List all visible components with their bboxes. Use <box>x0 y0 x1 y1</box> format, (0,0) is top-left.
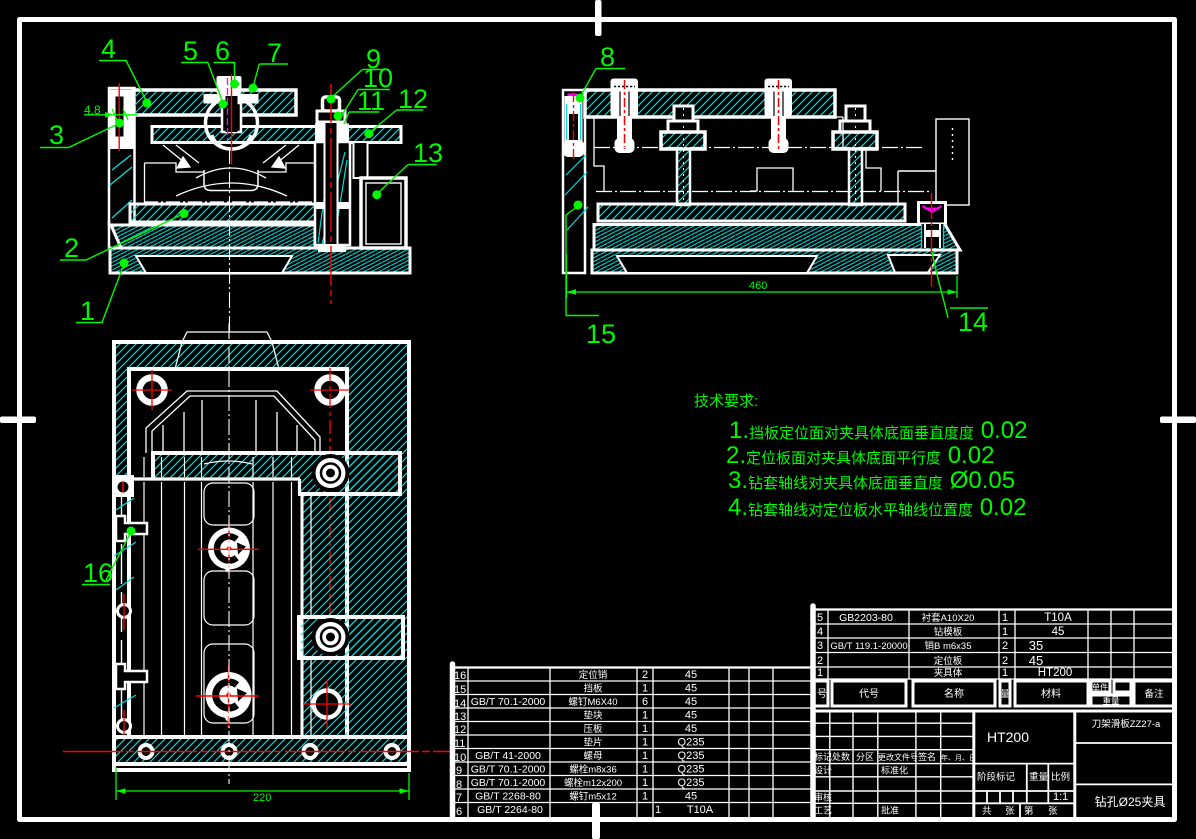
svg-text:螺栓m8x36: 螺栓m8x36 <box>569 764 617 776</box>
svg-text:定位销: 定位销 <box>579 669 608 681</box>
svg-text:16: 16 <box>454 670 466 682</box>
svg-text:1: 1 <box>1002 612 1008 624</box>
svg-text:HT200: HT200 <box>1038 667 1073 679</box>
svg-text:号: 号 <box>817 688 827 700</box>
svg-text:2: 2 <box>64 233 79 263</box>
svg-text:GB/T 70.1-2000: GB/T 70.1-2000 <box>471 696 546 708</box>
svg-text:共: 共 <box>982 806 992 817</box>
svg-text:45: 45 <box>685 669 697 681</box>
svg-text:张: 张 <box>1005 806 1015 817</box>
svg-text:螺母: 螺母 <box>583 751 602 762</box>
svg-text:5: 5 <box>817 612 823 624</box>
svg-text:1: 1 <box>642 777 648 789</box>
svg-text:GB/T 2268-80: GB/T 2268-80 <box>475 791 541 803</box>
svg-text:Q235: Q235 <box>678 737 705 749</box>
svg-text:GB/T 70.1-2000: GB/T 70.1-2000 <box>471 764 546 776</box>
svg-text:45: 45 <box>685 683 697 695</box>
svg-text:45: 45 <box>1052 626 1065 638</box>
svg-text:45: 45 <box>685 791 697 803</box>
svg-text:9: 9 <box>456 765 462 777</box>
svg-text:45: 45 <box>685 723 697 735</box>
svg-text:HT200: HT200 <box>987 729 1029 745</box>
svg-text:代号: 代号 <box>859 688 879 700</box>
svg-text:GB/T 41-2000: GB/T 41-2000 <box>475 750 541 762</box>
svg-text:定位板: 定位板 <box>934 655 963 667</box>
svg-text:8: 8 <box>456 779 462 791</box>
svg-text:13: 13 <box>454 711 466 723</box>
svg-text:处数: 处数 <box>832 751 850 762</box>
svg-text:45: 45 <box>1029 653 1043 668</box>
svg-text:签名: 签名 <box>918 751 936 762</box>
svg-text:11: 11 <box>454 738 465 750</box>
svg-text:螺钉M6X40: 螺钉M6X40 <box>568 697 617 708</box>
svg-text:6: 6 <box>456 806 462 818</box>
svg-text:T10A: T10A <box>1044 612 1072 624</box>
svg-text:刀架滑板ZZ27-a: 刀架滑板ZZ27-a <box>1092 718 1161 730</box>
svg-text:Q235: Q235 <box>678 750 705 762</box>
svg-text:夹具体: 夹具体 <box>934 667 963 679</box>
svg-text:Q235: Q235 <box>678 764 705 776</box>
svg-text:重量: 重量 <box>1102 696 1120 706</box>
svg-text:单件: 单件 <box>1092 682 1108 692</box>
svg-text:量: 量 <box>1000 689 1009 699</box>
svg-text:第: 第 <box>1024 805 1034 817</box>
svg-text:15: 15 <box>586 319 616 349</box>
svg-text:Q235: Q235 <box>678 777 705 789</box>
svg-text:1:1: 1:1 <box>1053 791 1068 803</box>
svg-text:1: 1 <box>642 791 648 803</box>
svg-text:比例: 比例 <box>1051 771 1070 783</box>
svg-text:1: 1 <box>655 804 661 816</box>
svg-text:4: 4 <box>101 34 116 64</box>
svg-text:材料: 材料 <box>1041 687 1061 700</box>
svg-text:1: 1 <box>642 750 648 762</box>
svg-text:14: 14 <box>454 698 466 710</box>
svg-text:年、月、日: 年、月、日 <box>941 753 976 762</box>
svg-text:1: 1 <box>642 710 648 722</box>
svg-text:1: 1 <box>642 723 648 735</box>
svg-text:挡板: 挡板 <box>583 683 603 695</box>
svg-text:备注: 备注 <box>1144 688 1164 700</box>
svg-text:垫片: 垫片 <box>583 737 602 749</box>
svg-text:分区: 分区 <box>856 752 874 762</box>
svg-text:GB/T 2264-80: GB/T 2264-80 <box>477 804 543 816</box>
svg-text:2: 2 <box>817 655 823 667</box>
svg-text:标准化: 标准化 <box>881 765 908 776</box>
svg-text:GB/T 70.1-2000: GB/T 70.1-2000 <box>471 777 546 789</box>
svg-text:14: 14 <box>958 307 988 337</box>
svg-text:1: 1 <box>80 296 95 326</box>
svg-text:220: 220 <box>253 792 271 804</box>
svg-text:1: 1 <box>817 667 823 679</box>
svg-text:螺钉m5x12: 螺钉m5x12 <box>569 792 617 803</box>
svg-text:GB/T 119.1-20000: GB/T 119.1-20000 <box>830 641 907 652</box>
svg-text:5: 5 <box>183 36 198 66</box>
svg-text:45: 45 <box>685 710 697 722</box>
svg-text:GB2203-80: GB2203-80 <box>839 612 893 624</box>
svg-text:更改文件号: 更改文件号 <box>878 752 918 762</box>
svg-text:13: 13 <box>413 138 443 168</box>
svg-text:8: 8 <box>600 42 615 72</box>
svg-text:12: 12 <box>454 724 466 736</box>
svg-text:45: 45 <box>685 696 697 708</box>
svg-text:2: 2 <box>1002 655 1008 667</box>
svg-text:名称: 名称 <box>944 687 964 700</box>
svg-text:销B m6x35: 销B m6x35 <box>925 640 972 652</box>
svg-text:设计: 设计 <box>814 765 832 776</box>
svg-text:2: 2 <box>1002 640 1008 652</box>
svg-text:标记: 标记 <box>814 751 832 762</box>
svg-text:1: 1 <box>1002 626 1008 638</box>
svg-text:钻模板: 钻模板 <box>934 626 963 638</box>
svg-text:工艺: 工艺 <box>814 806 832 816</box>
svg-text:技术要求:: 技术要求: <box>694 393 758 410</box>
svg-text:张: 张 <box>1048 806 1058 817</box>
svg-text:4: 4 <box>817 626 823 638</box>
svg-text:16: 16 <box>83 558 113 588</box>
svg-text:衬套A10X20: 衬套A10X20 <box>922 612 975 624</box>
svg-text:10: 10 <box>454 752 466 764</box>
svg-text:35: 35 <box>1029 638 1043 653</box>
svg-text:3: 3 <box>817 640 823 652</box>
svg-text:重量: 重量 <box>1029 771 1049 783</box>
svg-text:1: 1 <box>642 737 648 749</box>
svg-text:钻孔Ø25夹具: 钻孔Ø25夹具 <box>1095 794 1166 809</box>
svg-text:垫块: 垫块 <box>583 710 603 722</box>
svg-text:2: 2 <box>642 669 648 681</box>
svg-text:7: 7 <box>456 792 462 804</box>
svg-text:螺栓m12x200: 螺栓m12x200 <box>564 777 622 789</box>
svg-text:1: 1 <box>642 683 648 695</box>
svg-text:阶段标记: 阶段标记 <box>977 771 1016 783</box>
svg-text:批准: 批准 <box>881 805 899 816</box>
svg-text:1: 1 <box>642 764 648 776</box>
svg-text:1: 1 <box>1002 667 1008 679</box>
svg-text:压板: 压板 <box>583 723 603 735</box>
svg-text:6: 6 <box>642 696 648 708</box>
svg-text:T10A: T10A <box>687 804 714 816</box>
svg-text:460: 460 <box>749 280 767 292</box>
svg-text:15: 15 <box>454 684 466 696</box>
svg-text:3: 3 <box>49 120 64 150</box>
svg-text:6: 6 <box>215 36 230 66</box>
svg-text:审核: 审核 <box>814 792 832 803</box>
